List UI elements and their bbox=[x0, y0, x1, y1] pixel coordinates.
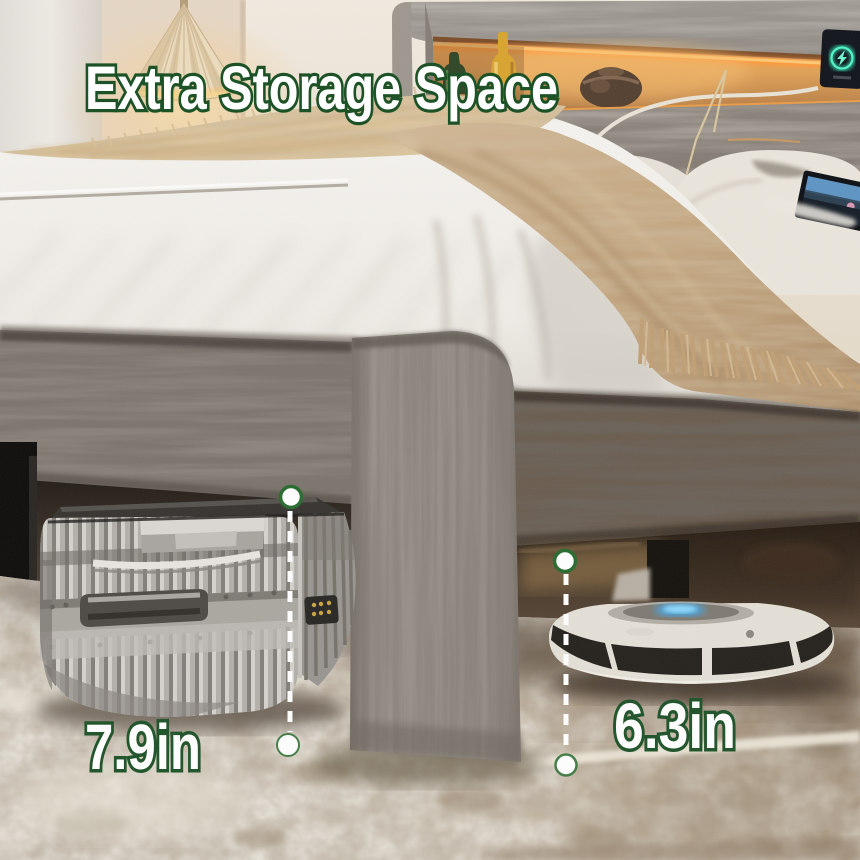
svg-text:Extra Storage Space: Extra Storage Space bbox=[85, 54, 558, 122]
